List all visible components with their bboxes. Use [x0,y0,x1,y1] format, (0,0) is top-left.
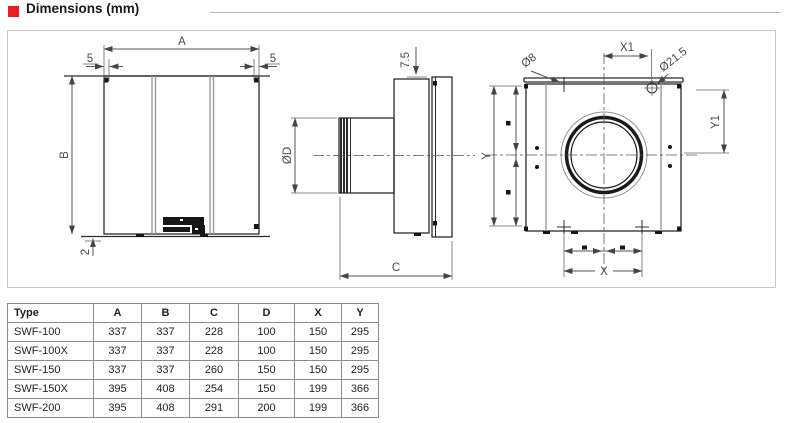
column-header-a: A [94,304,142,323]
dim-label-x1: X1 [620,42,634,54]
dim-label-o21-5: Ø21.5 [657,46,689,75]
column-header-b: B [142,304,190,323]
technical-drawing: A 5 5 B 2 7.5 [8,31,775,287]
front-view: A 5 5 B 2 [59,36,280,256]
value-cell: 228 [190,323,239,342]
value-cell: 150 [239,361,295,380]
dimension-table: TypeABCDXY SWF-100337337228100150295SWF-… [7,303,379,418]
section-bullet-icon [8,6,19,17]
value-cell: 228 [190,342,239,361]
value-cell: 408 [142,399,190,418]
value-cell: 337 [142,342,190,361]
type-cell: SWF-100 [8,323,94,342]
dim-label-7-5: 7.5 [400,52,412,68]
value-cell: 199 [295,399,342,418]
value-cell: 150 [295,361,342,380]
table-row: SWF-200395408291200199366 [8,399,379,418]
value-cell: 200 [239,399,295,418]
side-view: 7.5 ØD C [282,47,475,280]
value-cell: 291 [190,399,239,418]
value-cell: 295 [342,323,379,342]
type-cell: SWF-150 [8,361,94,380]
page-title: Dimensions (mm) [26,1,139,16]
type-cell: SWF-200 [8,399,94,418]
value-cell: 100 [239,342,295,361]
dim-label-x: X [600,266,608,278]
value-cell: 295 [342,342,379,361]
value-cell: 337 [94,323,142,342]
value-cell: 408 [142,380,190,399]
dim-label-od: ØD [282,147,294,164]
header-rule [210,12,781,13]
dim-label-2: 2 [80,249,92,255]
dim-label-o8: Ø8 [519,51,538,70]
column-header-y: Y [342,304,379,323]
value-cell: 150 [239,380,295,399]
table-row: SWF-150337337260150150295 [8,361,379,380]
type-cell: SWF-100X [8,342,94,361]
value-cell: 337 [94,361,142,380]
dim-label-b: B [59,151,71,159]
value-cell: 395 [94,399,142,418]
back-view: Y [481,42,729,278]
value-cell: 337 [94,342,142,361]
value-cell: 150 [295,323,342,342]
value-cell: 150 [295,342,342,361]
value-cell: 366 [342,399,379,418]
dim-label-c: C [392,262,400,274]
dim-label-y1: Y1 [710,115,722,129]
value-cell: 366 [342,380,379,399]
column-header-x: X [295,304,342,323]
dim-label-a: A [178,36,186,48]
dim-label-y: Y [481,152,493,160]
section-header: Dimensions (mm) [0,0,789,26]
value-cell: 199 [295,380,342,399]
value-cell: 295 [342,361,379,380]
column-header-type: Type [8,304,94,323]
value-cell: 260 [190,361,239,380]
product-label [163,217,205,234]
table-row: SWF-100X337337228100150295 [8,342,379,361]
drawing-panel: A 5 5 B 2 7.5 [7,30,776,288]
table-header-row: TypeABCDXY [8,304,379,323]
value-cell: 337 [142,361,190,380]
value-cell: 395 [94,380,142,399]
column-header-c: C [190,304,239,323]
dim-label-5-right: 5 [270,53,276,65]
value-cell: 337 [142,323,190,342]
value-cell: 254 [190,380,239,399]
dim-label-5-left: 5 [87,53,93,65]
table-row: SWF-100337337228100150295 [8,323,379,342]
value-cell: 100 [239,323,295,342]
type-cell: SWF-150X [8,380,94,399]
table-row: SWF-150X395408254150199366 [8,380,379,399]
column-header-d: D [239,304,295,323]
